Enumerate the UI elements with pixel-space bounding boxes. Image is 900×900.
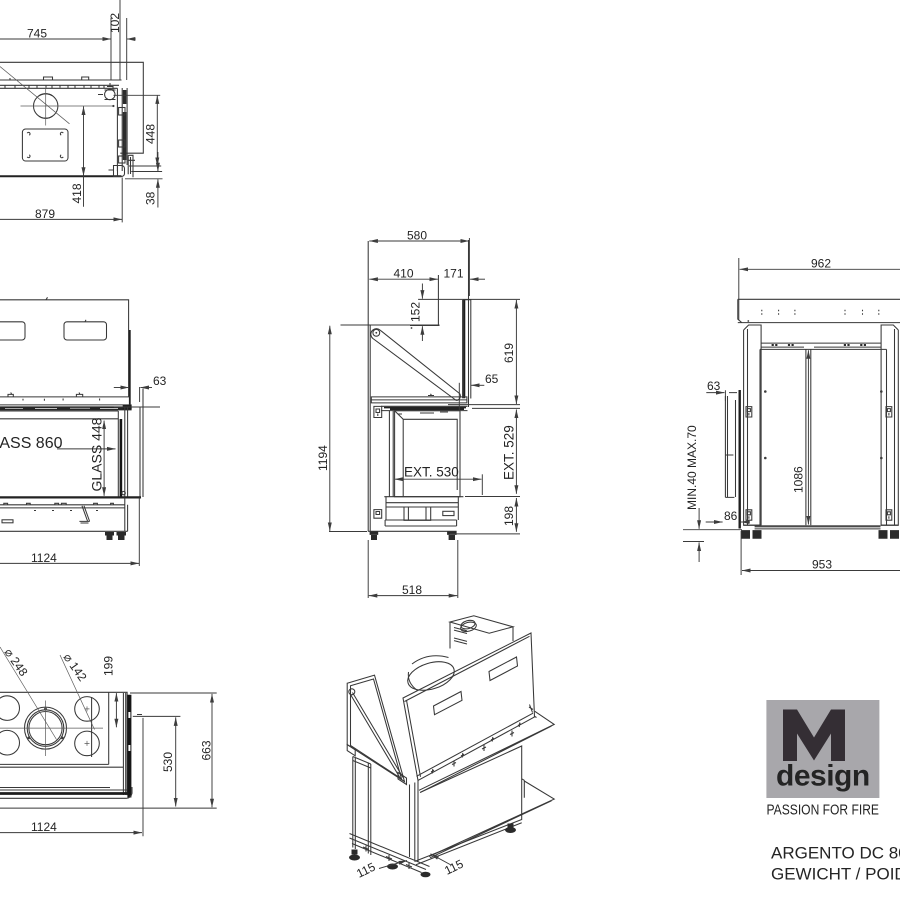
svg-text:63: 63	[707, 379, 721, 393]
svg-text:design: design	[776, 760, 870, 793]
svg-text:115: 115	[442, 857, 466, 878]
svg-text:⌀ 142: ⌀ 142	[61, 651, 90, 684]
svg-text:448: 448	[143, 124, 157, 144]
svg-text:65: 65	[485, 372, 499, 386]
svg-text:38: 38	[144, 191, 158, 205]
svg-text:1124: 1124	[31, 551, 57, 565]
svg-text:1086: 1086	[792, 466, 806, 493]
svg-text:580: 580	[407, 228, 427, 242]
svg-text:410: 410	[394, 267, 414, 281]
svg-text:171: 171	[444, 267, 464, 281]
svg-text:1124: 1124	[31, 820, 57, 834]
svg-text:115: 115	[354, 860, 378, 881]
svg-text:GEWICHT / POIDS: GEWICHT / POIDS	[771, 865, 900, 884]
svg-text:198: 198	[502, 506, 516, 526]
svg-text:619: 619	[502, 343, 516, 363]
svg-text:518: 518	[402, 583, 422, 597]
svg-text:199: 199	[102, 656, 116, 676]
svg-text:63: 63	[153, 374, 167, 388]
svg-text:GLASS 448: GLASS 448	[89, 417, 105, 491]
svg-text:102: 102	[108, 13, 122, 33]
svg-text:ARGENTO DC 80: ARGENTO DC 80	[771, 844, 900, 863]
svg-text:418: 418	[70, 183, 84, 203]
svg-text:152: 152	[409, 302, 423, 322]
svg-text:530: 530	[161, 752, 175, 772]
svg-text:PASSION FOR FIRE: PASSION FOR FIRE	[767, 803, 880, 819]
svg-text:663: 663	[200, 740, 214, 760]
svg-text:879: 879	[35, 207, 55, 221]
svg-text:1194: 1194	[316, 445, 330, 471]
svg-text:MIN.40 MAX.70: MIN.40 MAX.70	[685, 425, 699, 510]
svg-text:86: 86	[724, 509, 738, 523]
svg-text:EXT. 529: EXT. 529	[502, 425, 517, 480]
svg-text:GLASS 860: GLASS 860	[0, 435, 63, 452]
svg-text:953: 953	[812, 557, 832, 571]
svg-text:745: 745	[27, 27, 47, 41]
svg-text:⌀ 248: ⌀ 248	[2, 646, 31, 679]
svg-text:962: 962	[811, 257, 831, 271]
svg-text:EXT. 530: EXT. 530	[404, 465, 459, 480]
